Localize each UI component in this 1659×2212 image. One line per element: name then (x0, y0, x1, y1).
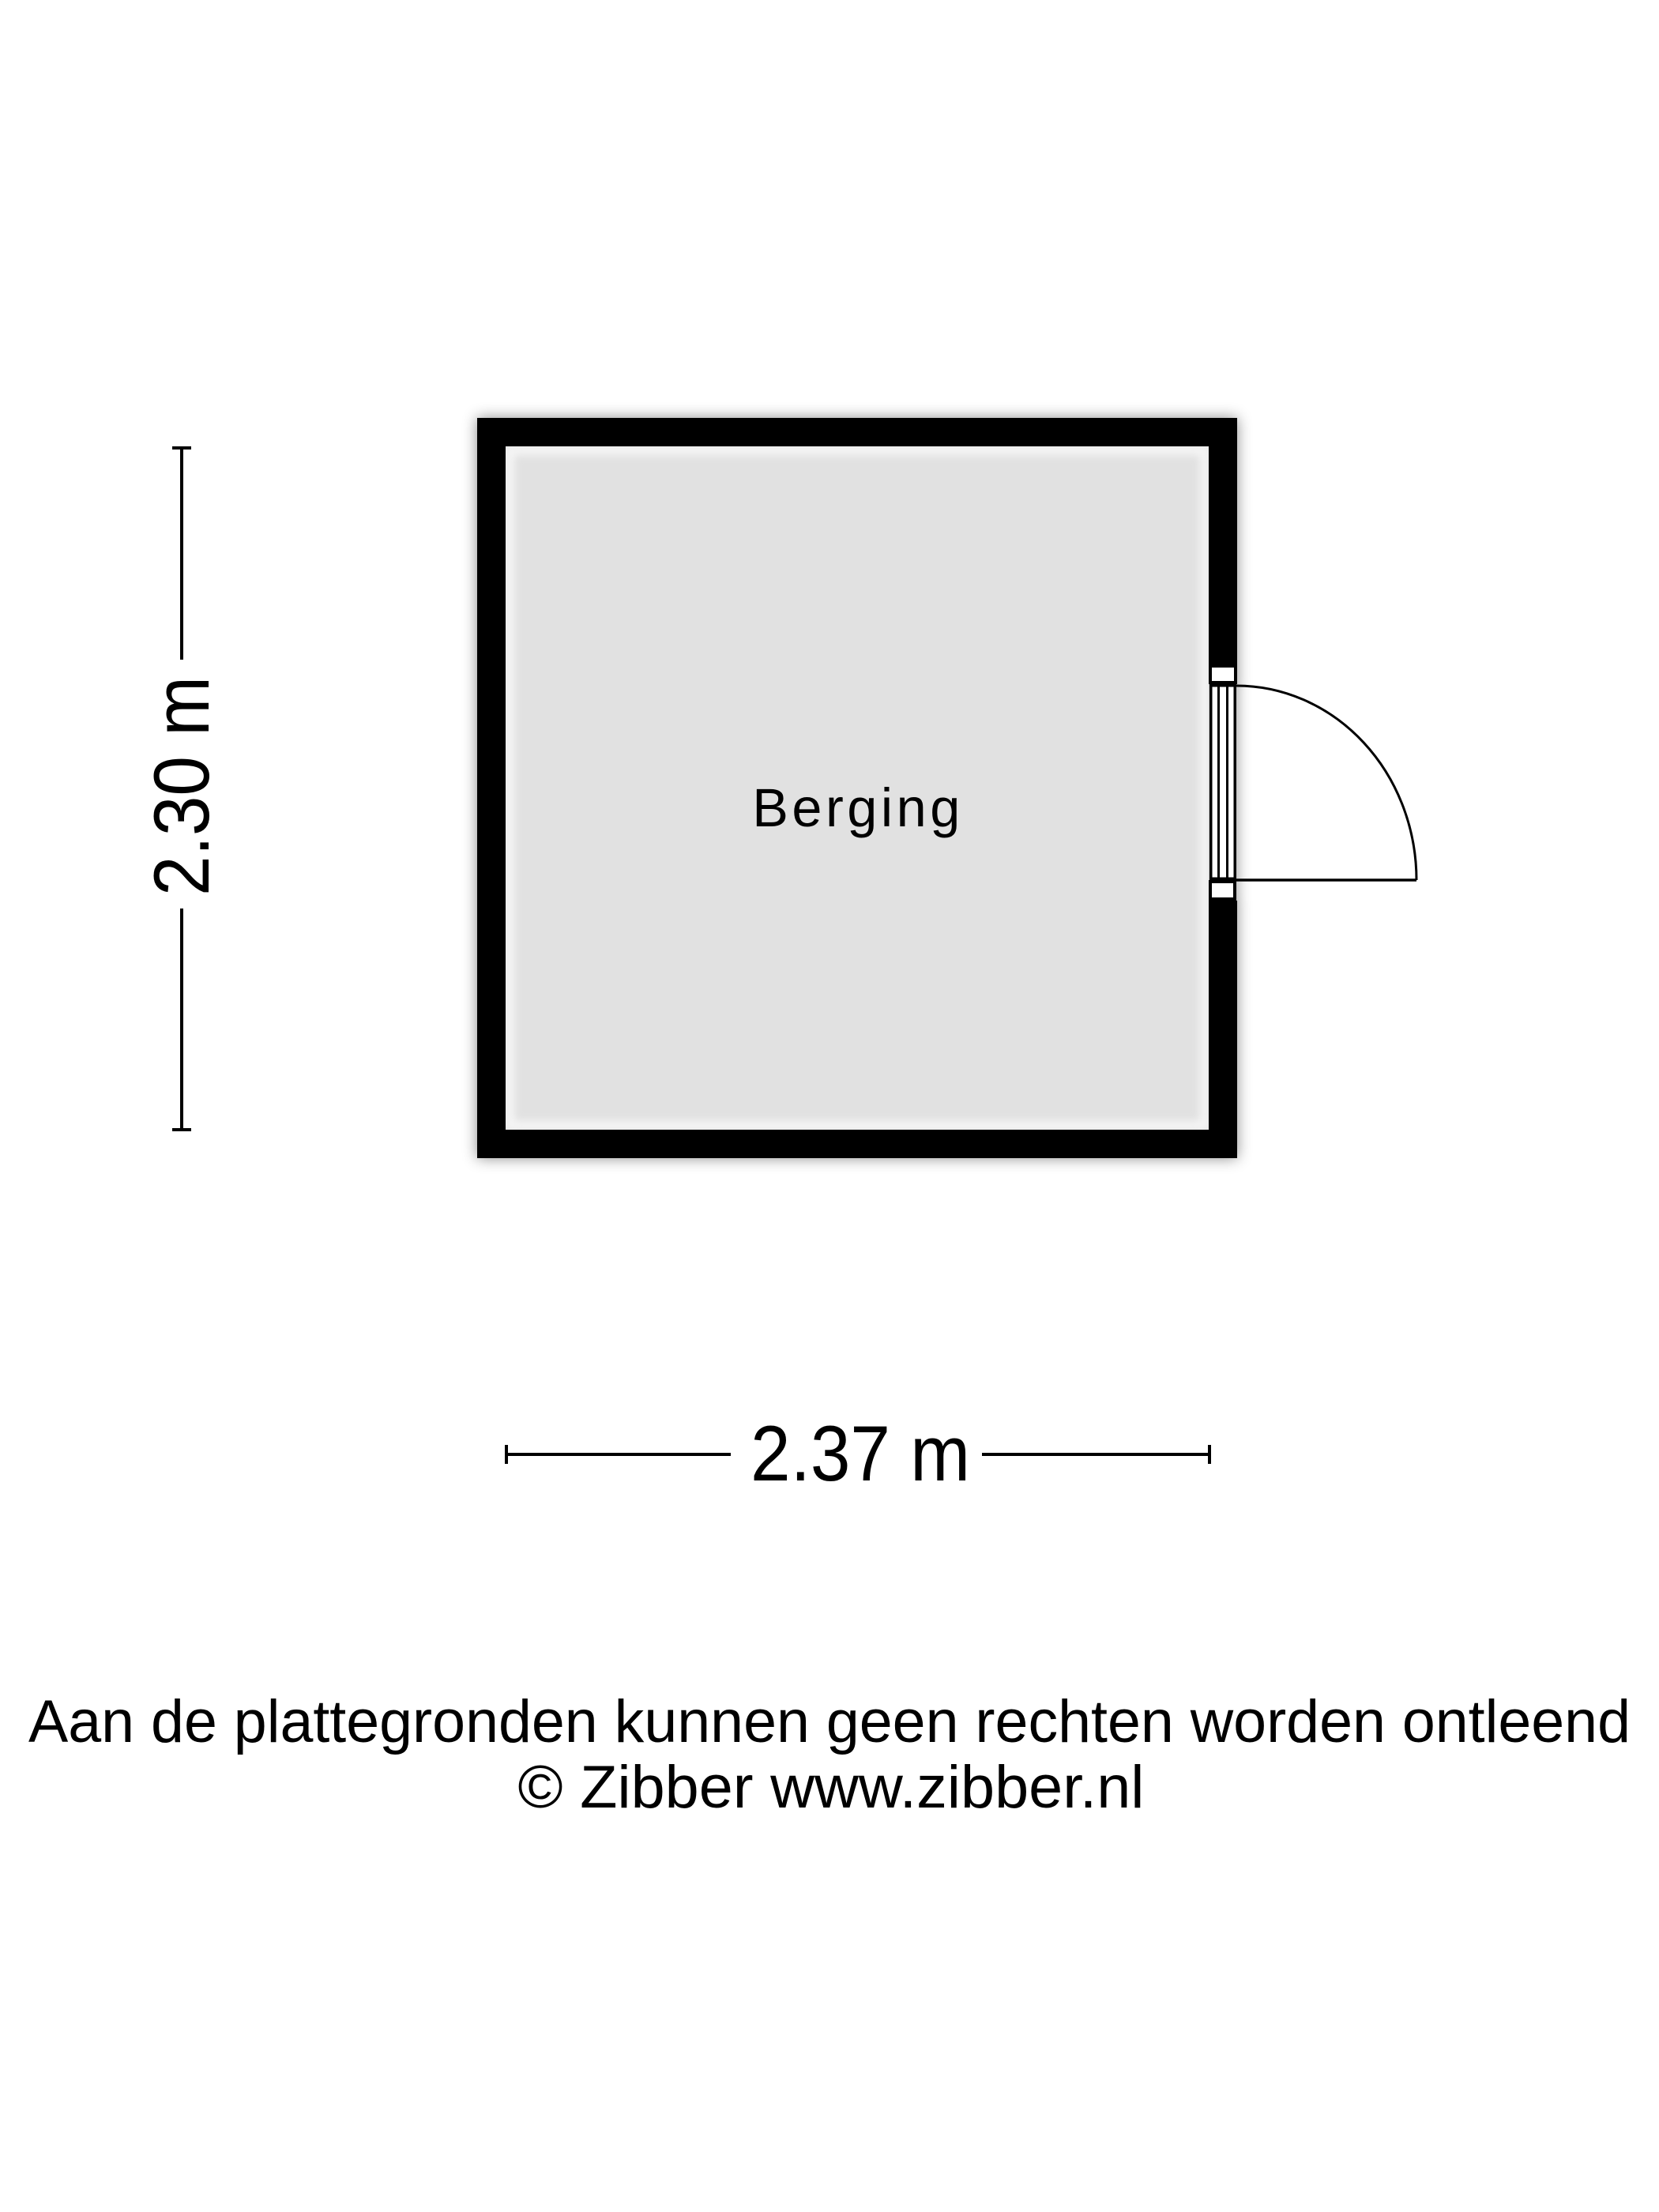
svg-text:© Zibber www.zibber.nl: © Zibber www.zibber.nl (518, 1754, 1145, 1821)
svg-text:2.30 m: 2.30 m (137, 676, 225, 896)
svg-text:2.37 m: 2.37 m (750, 1409, 970, 1497)
svg-text:Aan de plattegronden kunnen ge: Aan de plattegronden kunnen geen rechten… (28, 1688, 1631, 1755)
svg-text:Berging: Berging (752, 777, 964, 838)
